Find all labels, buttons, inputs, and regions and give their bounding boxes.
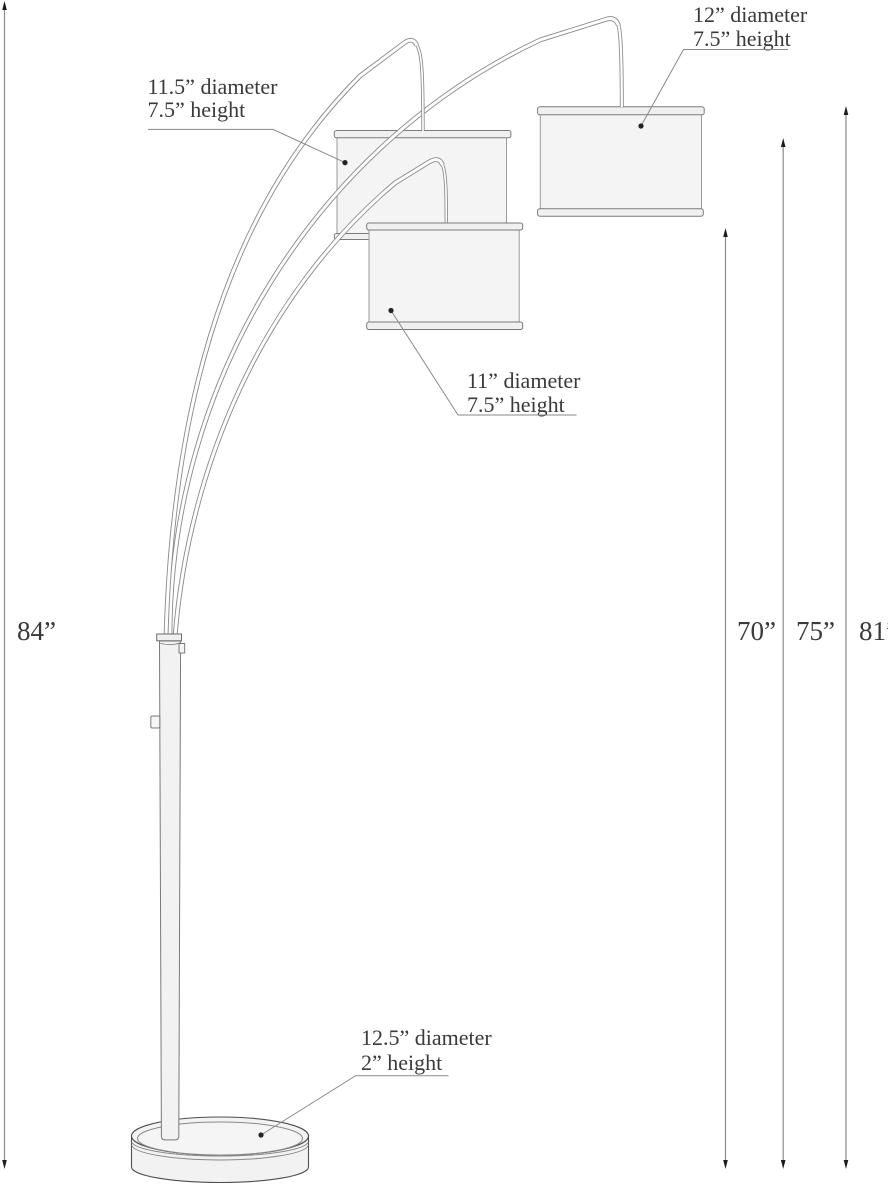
svg-text:7.5” height: 7.5” height [693,26,791,51]
svg-text:12.5” diameter: 12.5” diameter [361,1025,492,1050]
svg-text:81”: 81” [859,616,888,646]
svg-text:11.5” diameter: 11.5” diameter [148,74,279,99]
svg-text:2” height: 2” height [361,1050,442,1075]
svg-text:70”: 70” [737,616,776,646]
svg-text:11” diameter: 11” diameter [467,368,581,393]
svg-text:84”: 84” [17,616,56,646]
svg-text:7.5” height: 7.5” height [467,392,565,417]
svg-text:7.5” height: 7.5” height [148,97,246,122]
svg-text:12” diameter: 12” diameter [693,2,808,27]
svg-text:75”: 75” [796,616,835,646]
